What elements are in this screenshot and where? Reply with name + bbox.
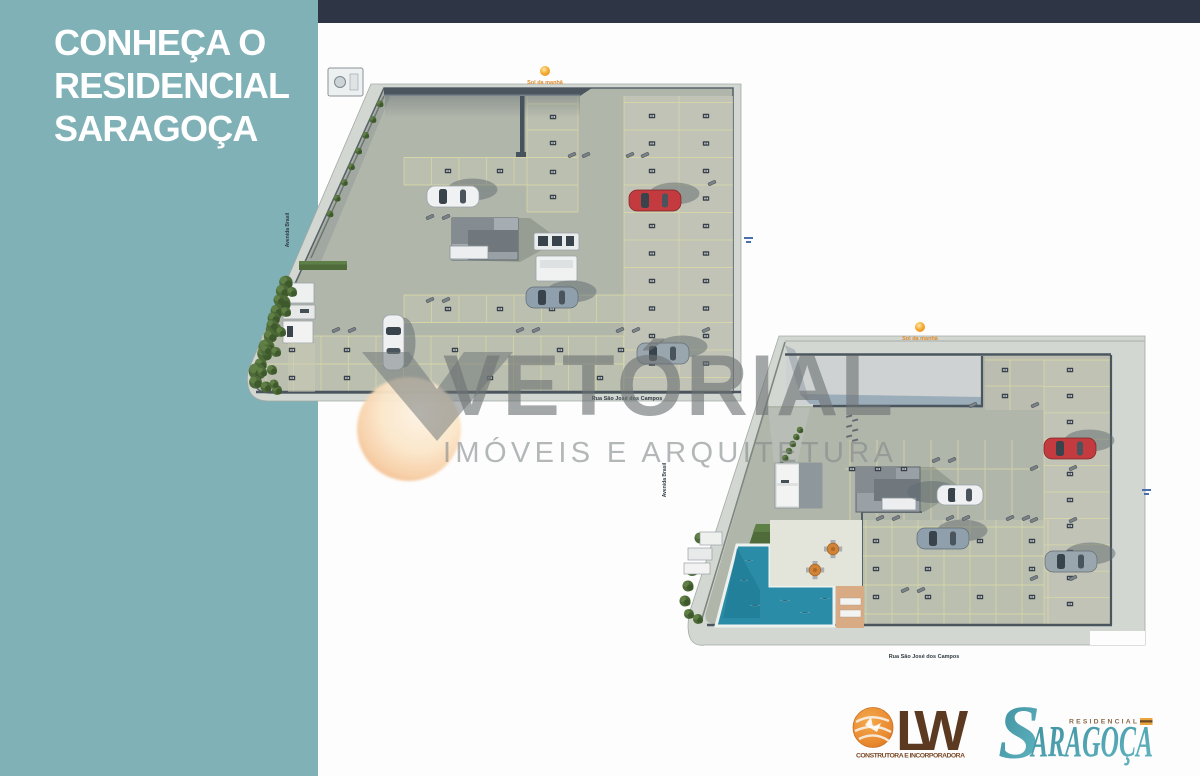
svg-text:Avenida Brasil: Avenida Brasil (285, 212, 291, 247)
svg-text:Rua São José dos Campos: Rua São José dos Campos (889, 654, 960, 660)
svg-text:CONSTRUTORA E INCORPORADORA: CONSTRUTORA E INCORPORADORA (856, 753, 965, 760)
svg-text:IMÓVEIS E ARQUITETURA: IMÓVEIS E ARQUITETURA (443, 436, 894, 469)
svg-text:Sol da manhã: Sol da manhã (902, 336, 939, 342)
svg-text:ARAGOÇA: ARAGOÇA (1029, 717, 1153, 766)
svg-text:VETÓRIAL: VETÓRIAL (443, 338, 895, 434)
svg-text:Sol da manhã: Sol da manhã (527, 80, 564, 86)
